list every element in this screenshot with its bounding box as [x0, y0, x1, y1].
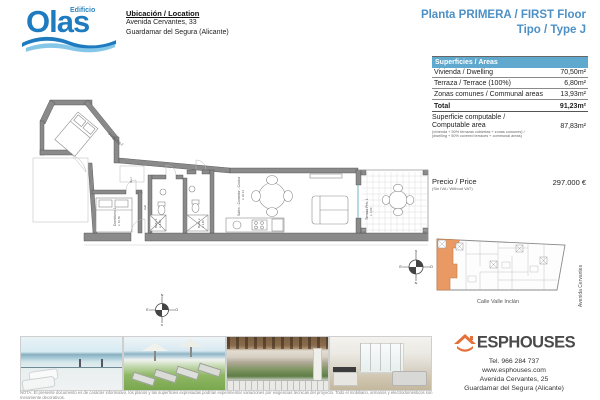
- lounger: [175, 366, 199, 381]
- pool-post: [79, 359, 81, 367]
- plan-title: Planta PRIMERA / FIRST Floor Tipo / Type…: [300, 8, 586, 38]
- photo-living-interior: [329, 336, 432, 391]
- agency-address-line1: Avenida Cervantes, 25: [436, 375, 592, 384]
- window-mullions: [360, 343, 402, 371]
- location-address-line2: Guardamar del Segura (Alicante): [126, 28, 296, 38]
- room-label-bano1: Baño 1: [154, 218, 158, 228]
- room-area-terraza: s: 6,80: [369, 207, 373, 216]
- compass-icon: S N E O: [399, 250, 433, 284]
- agency-name: ESPHOUSES: [477, 334, 575, 352]
- photo-balcony-pergola: [226, 336, 329, 391]
- street-label-bottom: Calle Valle Inclán: [477, 299, 519, 305]
- compass-icon: N S E O: [146, 294, 178, 326]
- pool-lounger: [21, 376, 55, 391]
- table-row: Zonas comunes / Communal areas 13,93m²: [432, 89, 588, 100]
- svg-text:N: N: [415, 281, 418, 284]
- room-area-dormitorio1: s: 10,56: [117, 216, 121, 226]
- lounger: [197, 363, 221, 378]
- computable-value: 87,83m²: [560, 123, 586, 130]
- table-row: Terraza / Terrace (100%) 6,80m²: [432, 78, 588, 89]
- agency-address-line2: Guardamar del Segura (Alicante): [436, 384, 592, 393]
- price-block: Precio / Price (Sin IVA / Without VAT) 2…: [432, 177, 588, 193]
- pool-post: [101, 359, 103, 367]
- location-address-line1: Avenida Cervantes, 33: [126, 18, 296, 28]
- agency-block: ESPHOUSES Tel. 966 284 737 www.esphouses…: [436, 333, 592, 393]
- site-plan: Calle Valle Inclán Avenida Cervantes: [432, 236, 588, 322]
- lounger: [131, 372, 155, 387]
- plan-title-type: Tipo / Type J: [300, 23, 586, 38]
- agency-website: www.esphouses.com: [436, 366, 592, 375]
- parasol: [142, 343, 168, 351]
- row-label: Vivienda / Dwelling: [432, 69, 495, 77]
- svg-text:S: S: [415, 250, 418, 254]
- room-label-bano2: Baño 2: [197, 218, 201, 228]
- row-label: Zonas comunes / Communal areas: [432, 91, 545, 99]
- total-label: Total: [432, 103, 452, 111]
- street-label-right: Avenida Cervantes: [578, 264, 584, 307]
- plan-title-floor: Planta PRIMERA / FIRST Floor: [300, 8, 586, 23]
- apartment-floor-plan: Dormitorio 2 s: 10,50 Dormitorio 1 s: 10…: [20, 90, 430, 295]
- table-row: Vivienda / Dwelling 70,50m²: [432, 67, 588, 78]
- row-value: 13,93m²: [558, 91, 588, 99]
- computable-area-block: Superficie computable / Computable area …: [432, 114, 588, 146]
- row-value: 70,50m²: [558, 69, 588, 77]
- room-area-bano1: s: 3,60: [158, 220, 162, 228]
- location-title: Ubicación / Location: [126, 9, 296, 18]
- room-area-bano2: s: 3,60: [201, 220, 205, 228]
- room-label-via: Via J: [129, 177, 133, 183]
- kitchen-cabinets: [333, 372, 358, 386]
- areas-table-header: Superficies / Areas: [432, 56, 588, 68]
- total-value: 91,23m²: [558, 103, 588, 111]
- svg-text:E: E: [399, 265, 402, 269]
- computable-label-es: Superficie computable /: [432, 114, 588, 122]
- railing-balusters: [227, 381, 328, 390]
- price-value: 297.000 €: [553, 178, 586, 187]
- lounger: [153, 369, 177, 384]
- table-row-total: Total 91,23m²: [432, 100, 588, 112]
- room-area-salon: s: 26,13: [241, 190, 245, 200]
- row-label: Terraza / Terrace (100%): [432, 80, 513, 88]
- agency-logo: ESPHOUSES: [436, 333, 592, 357]
- computable-note-en: (dwelling + 50% covered terraces + commu…: [432, 134, 588, 138]
- edificio-olas-logo: Edificio Olas: [12, 2, 124, 58]
- location-block: Ubicación / Location Avenida Cervantes, …: [126, 9, 296, 37]
- legal-note-line1: NOTA: El presente documento es de caráct…: [20, 391, 436, 400]
- svg-text:S: S: [161, 323, 164, 326]
- svg-text:O: O: [175, 308, 178, 312]
- agency-phone: Tel. 966 284 737: [436, 357, 592, 366]
- balcony-column: [313, 348, 322, 384]
- brochure-page: Edificio Olas Ubicación / Location Aveni…: [0, 0, 600, 400]
- house-icon: [453, 333, 477, 353]
- row-value: 6,80m²: [562, 80, 588, 88]
- parasol: [179, 339, 203, 347]
- pool-edge: [21, 367, 122, 368]
- photo-infinity-pool: [20, 336, 123, 391]
- legal-note: NOTA: El presente documento es de caráct…: [20, 391, 436, 400]
- svg-text:N: N: [161, 294, 164, 297]
- svg-text:E: E: [146, 308, 149, 312]
- photo-sun-loungers: [123, 336, 226, 391]
- wave-icon: [20, 35, 118, 55]
- room-label-hall: Hall: [143, 205, 147, 210]
- sofa: [392, 371, 427, 386]
